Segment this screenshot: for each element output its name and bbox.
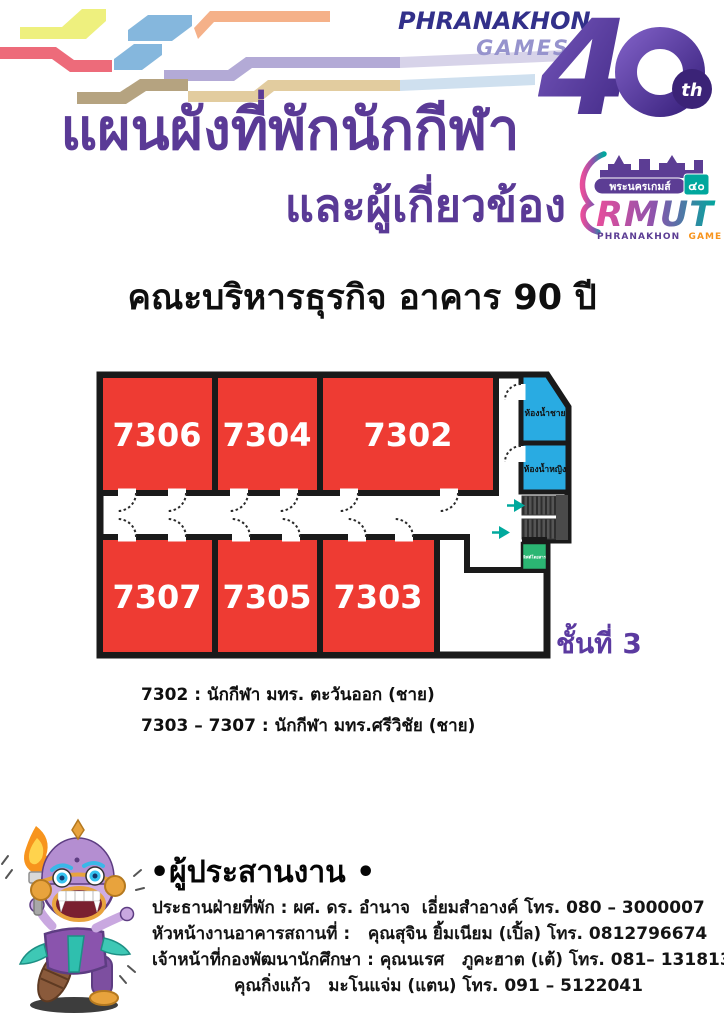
th-suffix: th — [681, 80, 702, 101]
room-7306-label: 7306 — [112, 416, 201, 454]
room-7307-label: 7307 — [112, 578, 201, 616]
legend-line-1: 7302 : นักกีฬา มทร. ตะวันออก (ชาย) — [141, 681, 435, 708]
english-name-1: PHRANAKHON — [597, 232, 680, 242]
room-7305-label: 7305 — [222, 578, 311, 616]
coordinators-heading: •ผู้ประสานงาน • — [150, 849, 375, 896]
poster-title-line2: และผู้เกี่ยวข้อง — [14, 181, 566, 231]
legend-line-2: 7303 – 7307 : นักกีฬา มทร.ศรีวิชัย (ชาย) — [141, 712, 475, 739]
svg-text:PHRANAKHON GAMES: PHRANAKHON GAMES — [597, 232, 722, 242]
coordinator-line: เจ้าหน้าที่กองพัฒนานักศึกษา : คุณนเรศ ภู… — [152, 947, 724, 973]
building-heading: คณะบริหารธุรกิจ อาคาร 90 ปี — [0, 270, 724, 325]
poster: PHRANAKHON GAMES 4 th แผนผังที่พักนักกีฬ… — [0, 0, 724, 1024]
rmut-games-logo: พระนครเกมส์ ๔๐ RMUT PHRANAKHON GAMES — [574, 136, 722, 254]
rmut-acronym: RMUT — [596, 195, 716, 235]
poster-title-line1: แผนผังที่พักนักกีฬา — [14, 99, 566, 162]
coordinator-line: คุณกิ่งแก้ว มะโนแจ่ม (แตน) โทร. 091 – 51… — [234, 973, 724, 999]
room-7303-label: 7303 — [333, 578, 422, 616]
mascot-giant — [0, 818, 155, 1018]
floor-label: ชั้นที่ 3 — [556, 622, 642, 666]
thai-number: ๔๐ — [688, 179, 704, 193]
thai-name: พระนครเกมส์ — [609, 180, 671, 193]
floor-plan: ห้องน้ำชาย ห้องน้ำหญิง ลิฟต์โดยสาร 7306 … — [95, 350, 640, 665]
room-7304-label: 7304 — [222, 416, 311, 454]
coordinator-line: ประธานฝ่ายที่พัก : ผศ. ดร. อำนาจ เอี่ยมส… — [152, 895, 724, 921]
room-7302-label: 7302 — [363, 416, 452, 454]
coordinators-list: ประธานฝ่ายที่พัก : ผศ. ดร. อำนาจ เอี่ยมส… — [152, 895, 724, 999]
elevator-label: ลิฟต์โดยสาร — [523, 554, 547, 560]
coordinator-line: หัวหน้างานอาคารสถานที่ : คุณสุจิน ยิ้มเน… — [152, 921, 724, 947]
english-name-2: GAMES — [688, 232, 722, 242]
